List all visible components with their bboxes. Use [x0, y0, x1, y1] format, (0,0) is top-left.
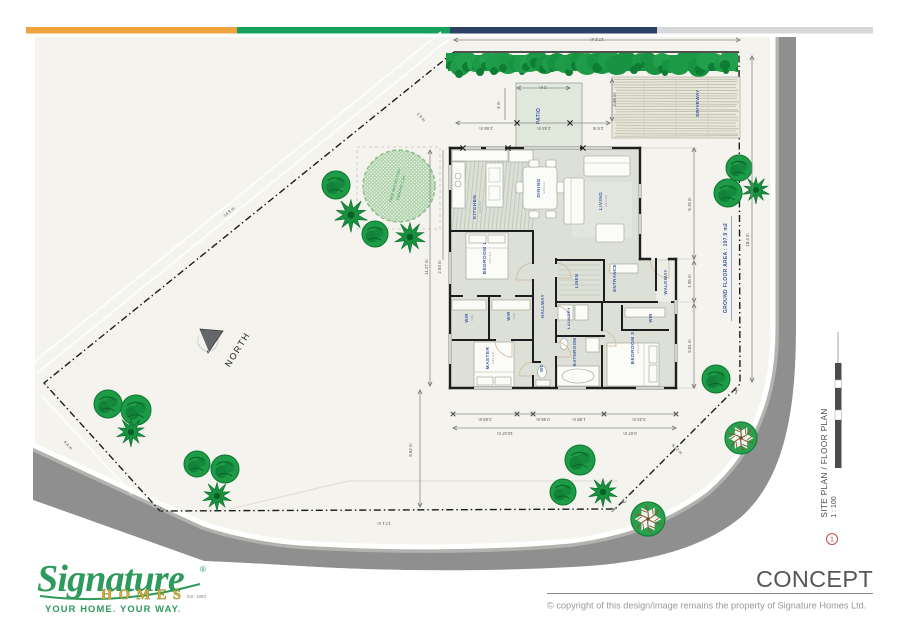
svg-text:3 m: 3 m [539, 85, 547, 90]
svg-text:ENTRANCE: ENTRANCE [612, 264, 617, 292]
svg-text:3.2 x 3.6: 3.2 x 3.6 [491, 352, 495, 364]
svg-text:18.4 m: 18.4 m [745, 233, 750, 247]
svg-text:WALKWAY: WALKWAY [663, 269, 668, 294]
svg-text:3.0 x 3.1: 3.0 x 3.1 [636, 342, 640, 354]
svg-text:3.23 m: 3.23 m [632, 417, 646, 422]
svg-text:1.88 m: 1.88 m [572, 417, 586, 422]
svg-text:LAUNDRY: LAUNDRY [566, 307, 571, 329]
svg-text:11.27 m: 11.27 m [424, 259, 429, 275]
svg-text:WIR: WIR [464, 313, 469, 322]
svg-text:WIR: WIR [506, 311, 511, 320]
svg-text:17.2 m: 17.2 m [590, 37, 604, 42]
svg-text:1.6x: 1.6x [512, 313, 516, 319]
svg-text:WIR: WIR [648, 313, 653, 322]
svg-text:DRIVEWAY: DRIVEWAY [695, 89, 700, 116]
svg-text:© copyright of this design/ima: © copyright of this design/image remains… [547, 601, 866, 611]
svg-text:10.67 m: 10.67 m [497, 431, 513, 436]
svg-text:®: ® [200, 565, 206, 574]
svg-text:2.93 m: 2.93 m [437, 260, 442, 274]
svg-text:3.69 m: 3.69 m [478, 417, 492, 422]
svg-text:HOMES: HOMES [101, 587, 187, 603]
svg-text:Est. 1983: Est. 1983 [187, 594, 207, 599]
svg-text:1 : 100: 1 : 100 [831, 496, 838, 518]
svg-text:5.62 m: 5.62 m [408, 443, 413, 457]
svg-text:3.0 x 3.2: 3.0 x 3.2 [488, 252, 492, 264]
svg-text:0.96 m: 0.96 m [536, 417, 550, 422]
svg-text:BATHROOM: BATHROOM [572, 338, 577, 367]
svg-text:5.01 m: 5.01 m [687, 339, 692, 353]
svg-text:3.2 x 4.1: 3.2 x 4.1 [478, 201, 482, 213]
svg-text:SITE PLAN / FLOOR PLAN: SITE PLAN / FLOOR PLAN [820, 408, 829, 517]
svg-text:17.1 m: 17.1 m [377, 521, 391, 526]
svg-text:YOUR HOME. YOUR WAY.: YOUR HOME. YOUR WAY. [45, 603, 182, 614]
svg-text:1: 1 [830, 537, 834, 544]
svg-text:CONCEPT: CONCEPT [756, 566, 873, 592]
svg-text:4.2 x 4.6: 4.2 x 4.6 [604, 195, 608, 207]
svg-text:3.0 x 3.3: 3.0 x 3.3 [542, 182, 546, 194]
svg-text:2.56 m: 2.56 m [612, 93, 617, 107]
svg-text:WC: WC [539, 364, 544, 372]
svg-text:0.67 m: 0.67 m [623, 431, 637, 436]
svg-text:LINEN: LINEN [574, 274, 579, 289]
svg-text:2.65 m: 2.65 m [479, 126, 493, 131]
svg-text:5.15 m: 5.15 m [687, 197, 692, 211]
svg-text:5 m: 5 m [496, 101, 501, 109]
svg-text:GROUND FLOOR AREA : 197.9 m2: GROUND FLOOR AREA : 197.9 m2 [723, 223, 729, 313]
svg-text:2.5 m: 2.5 m [592, 126, 603, 131]
svg-text:HALLWAY: HALLWAY [540, 294, 545, 318]
svg-text:1.6x: 1.6x [470, 315, 474, 321]
svg-text:1.95 m: 1.95 m [687, 274, 692, 288]
svg-text:2.44 m: 2.44 m [537, 126, 551, 131]
svg-text:PATIO: PATIO [536, 108, 542, 125]
